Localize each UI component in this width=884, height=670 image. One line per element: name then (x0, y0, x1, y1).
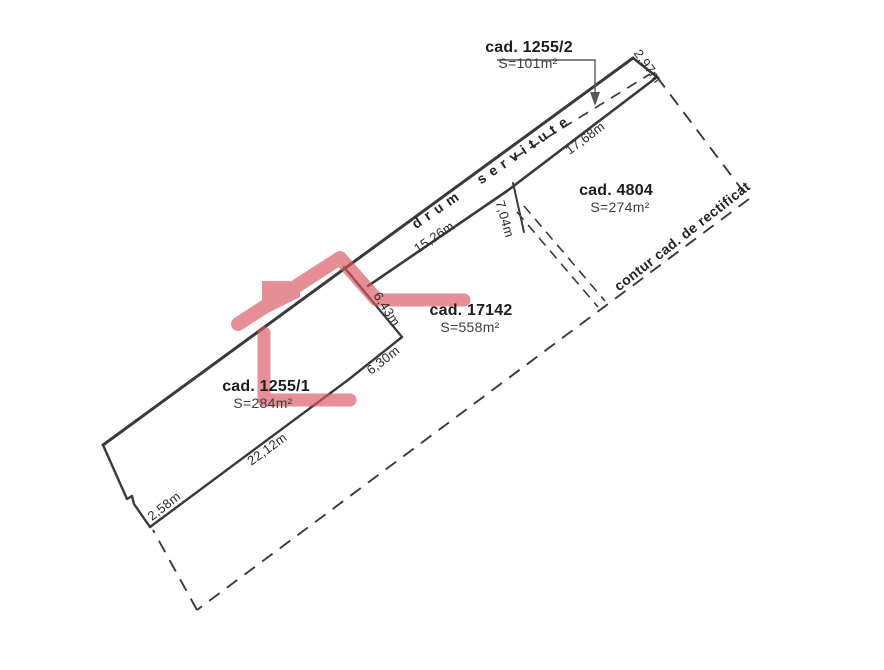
parcel-label-1255-1: cad. 1255/1 (222, 379, 310, 395)
contour-cap-sw (153, 530, 197, 610)
contour-cap-ne (657, 77, 749, 199)
boundary-west-cap (103, 445, 150, 527)
parcel-split-double-dashed (517, 206, 605, 307)
area-label-1255-2: S=101m² (498, 56, 557, 70)
leader-arrowhead-icon (590, 92, 600, 106)
boundary-nw-long (103, 58, 633, 445)
split-dash-a (517, 212, 598, 307)
split-dash-b (524, 206, 605, 301)
area-label-17142: S=558m² (440, 320, 499, 334)
parcel-label-17142: cad. 17142 (430, 303, 513, 319)
parcel-label-1255-2: cad. 1255/2 (485, 40, 573, 56)
area-label-4804: S=274m² (590, 200, 649, 214)
area-label-1255-1: S=284m² (233, 396, 292, 410)
house-roof (238, 258, 376, 324)
plan-drawing (0, 0, 884, 670)
cadastral-plan: cad. 1255/2 S=101m² 2,97m drum servitute… (0, 0, 884, 670)
parcel-label-4804: cad. 4804 (579, 183, 653, 199)
